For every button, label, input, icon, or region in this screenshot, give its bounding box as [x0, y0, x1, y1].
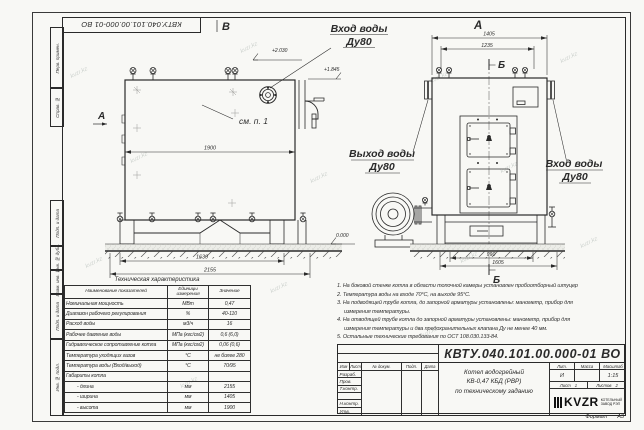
spec-cell-value: 0,6 (6,0) — [209, 330, 251, 340]
view-label-v: В — [222, 21, 230, 33]
spec-header-row: Наименование показателей Единицы измерен… — [65, 286, 251, 299]
elev-1845 — [308, 73, 341, 80]
elev-text-1845: +1.845 — [324, 67, 340, 73]
note-line: 4. На отводящей трубе котла до запорной … — [337, 316, 625, 325]
spec-table-title: Техническая характеристика — [64, 277, 250, 283]
dim-text-1630: 1630 — [196, 255, 208, 261]
spec-cell-name: Расход воды — [65, 319, 168, 329]
spec-cell-unit: % — [168, 309, 209, 319]
see-note-text: см. п. 1 — [239, 116, 268, 126]
rev-col-podp: Подп. — [402, 363, 422, 371]
furnace-doors — [460, 116, 517, 213]
rev-col-data: Дата — [422, 363, 439, 371]
scale-value: 1:15 — [600, 370, 626, 382]
spec-table: Наименование показателей Единицы измерен… — [64, 285, 251, 413]
format-label: ФорматА3 — [500, 414, 628, 420]
spec-row: - длинамм2155 — [65, 382, 251, 392]
support-frame — [120, 220, 306, 244]
lit-value: И — [550, 370, 575, 382]
spec-cell-value: 16 — [209, 319, 251, 329]
product-name-line2: КВ-0,47 КБД (РВР) — [439, 377, 549, 386]
spec-cell-unit: МПа (кгс/см2) — [168, 340, 209, 350]
spec-cell-unit: °С — [168, 350, 209, 360]
dim-text-2155: 2155 — [203, 268, 217, 274]
dim-text-1900: 1900 — [204, 146, 216, 152]
format-word: Формат — [585, 414, 607, 420]
product-name-line1: Котел водогрейный — [439, 368, 549, 377]
spec-cell-value: 0,06 (0,6) — [209, 340, 251, 350]
leader-outlet — [413, 100, 428, 152]
spec-cell-value — [209, 371, 251, 381]
margin-label: Подп. и дата — [55, 302, 60, 331]
elev-2030 — [253, 54, 302, 61]
margin-cell-inv-podl: Инв. № подл. — [50, 338, 64, 416]
sheet-num: 1 — [575, 383, 577, 388]
note-line: измерения температуры. — [337, 308, 625, 317]
spec-cell-value: 70/95 — [209, 361, 251, 371]
spec-header-name: Наименование показателей — [65, 286, 168, 299]
front-view-label-a: А — [473, 20, 482, 32]
spec-cell-unit: МВт — [168, 299, 209, 309]
company-name: КОТЕЛЬНЫЙ ЗАВОД РЭП — [601, 398, 622, 407]
margin-label: Подп. и дата — [55, 209, 60, 238]
spec-row: Номинальная мощностьМВт0,47 — [65, 299, 251, 309]
spec-cell-value: 40-110 — [209, 309, 251, 319]
inlet-flange — [260, 87, 277, 104]
rev-spare-row — [338, 354, 439, 363]
elev-text-2030: +2.030 — [272, 48, 288, 54]
sheets-cell: Листов 2 — [588, 382, 626, 389]
company-logo-cell: KVZR КОТЕЛЬНЫЙ ЗАВОД РЭП — [550, 389, 626, 415]
kvzr-logo-bars-icon — [554, 397, 562, 408]
spec-cell-name: - ширина — [65, 392, 168, 402]
spec-cell-name: - длина — [65, 382, 168, 392]
view-arrow-label-a: А — [97, 111, 105, 122]
ground-hatch-left — [105, 244, 342, 259]
dim-text-990: 990 — [487, 252, 496, 258]
sheets-num: 2 — [615, 383, 617, 388]
spec-row: Температура уходящих газов°Сне более 280 — [65, 350, 251, 360]
label-inlet-top-line2: Ду80 — [345, 36, 372, 48]
note-line: 5. Остальные технические требования по О… — [337, 333, 625, 342]
leader-inlet-top — [270, 48, 331, 88]
drawing-canvas: Вход воды Ду80 Выход воды Ду80 Вход воды… — [62, 17, 624, 283]
spec-cell-name: Рабочее давление воды — [65, 330, 168, 340]
note-line: 1. На боковой стенке котла в области топ… — [337, 282, 625, 291]
label-outlet-line1: Выход воды — [349, 148, 415, 160]
company-name-line2: ЗАВОД РЭП — [601, 402, 622, 406]
spec-cell-unit: МПа (кгс/см2) — [168, 330, 209, 340]
spec-row: - ширинамм1405 — [65, 392, 251, 402]
spec-row: Диапазон рабочего регулирования%40-110 — [65, 309, 251, 319]
label-inlet-top-line1: Вход воды — [331, 23, 388, 35]
product-name-line3: по техническому заданию — [439, 387, 549, 396]
control-box — [513, 87, 538, 107]
spec-row: Рабочее давление водыМПа (кгс/см2)0,6 (6… — [65, 330, 251, 340]
product-name: Котел водогрейный КВ-0,47 КБД (РВР) по т… — [439, 363, 550, 415]
spec-cell-unit: мм — [168, 382, 209, 392]
spec-cell-name: Диапазон рабочего регулирования — [65, 309, 168, 319]
label-outlet-line2: Ду80 — [368, 161, 395, 173]
spec-cell-name: Габариты котла — [65, 371, 168, 381]
rev-col-dokum: № докум. — [362, 363, 402, 371]
spec-row: - высотамм1900 — [65, 402, 251, 412]
title-block: Изм Лист № докум. Подп. Дата Разраб. Про… — [337, 344, 625, 414]
margin-label: Взам. инв. № — [55, 268, 60, 296]
note-line: 3. На подводящей трубе котла, до запорно… — [337, 299, 625, 308]
role-prov: Пров. — [338, 378, 362, 385]
spec-cell-value: 2155 — [209, 382, 251, 392]
spec-cell-name: Номинальная мощность — [65, 299, 168, 309]
spec-table-block: Техническая характеристика Наименование … — [64, 277, 250, 413]
dim-1235 — [441, 46, 534, 69]
role-nkontr: Н.контр. — [338, 400, 362, 407]
margin-label: Справ. № — [55, 97, 60, 118]
door-handle-lower — [468, 184, 493, 190]
col-scale-header: Масштаб — [600, 363, 626, 370]
role-empty — [338, 393, 362, 400]
dim-text-1405: 1405 — [483, 32, 495, 38]
sheets-word: Листов — [596, 383, 611, 388]
role-tkontr: Т.контр. — [338, 386, 362, 393]
side-view — [93, 20, 355, 278]
dim-text-1605: 1605 — [492, 260, 504, 266]
sheet-word: Лист — [560, 383, 571, 388]
fan-unit — [372, 193, 432, 247]
note-line: измерения температуры и два предохраните… — [337, 325, 625, 334]
spec-cell-unit: м3/ч — [168, 319, 209, 329]
label-inlet-right-line2: Ду80 — [561, 171, 588, 183]
spec-cell-name: Гидравлическое сопротивление котла — [65, 340, 168, 350]
spec-cell-value: не более 280 — [209, 350, 251, 360]
right-stub-valve — [548, 207, 556, 227]
dim-text-1235: 1235 — [481, 43, 493, 49]
margin-cell-podp-data-2: Подп. и дата — [50, 293, 64, 340]
inlet-flange-right — [547, 81, 555, 99]
spec-row: Расход водым3/ч16 — [65, 319, 251, 329]
company-logo: KVZR КОТЕЛЬНЫЙ ЗАВОД РЭП — [550, 389, 626, 415]
rev-col-izm: Изм — [338, 363, 350, 371]
spec-cell-unit — [168, 371, 209, 381]
col-mass-header: Масса — [575, 363, 600, 370]
role-razrab: Разраб. — [338, 371, 362, 378]
mass-value — [575, 370, 600, 382]
spec-cell-unit: мм — [168, 402, 209, 412]
view-arrow-a — [93, 122, 107, 125]
spec-header-value: Значение — [209, 286, 251, 299]
rev-dokum-col — [362, 371, 402, 415]
spec-row: Гидравлическое сопротивление котлаМПа (к… — [65, 340, 251, 350]
leader-inlet-right — [553, 100, 567, 163]
titleblock-doc-number: КВТУ.040.101.00.000-01 ВО — [439, 345, 626, 363]
front-base — [437, 215, 545, 246]
section-label-b-top: Б — [498, 60, 505, 71]
col-lit-header: Лит. — [550, 363, 575, 370]
leader-see-note — [202, 105, 233, 119]
kvzr-logo-text: KVZR — [564, 395, 599, 409]
drawing-sheet: kvzr.kz kvzr.kz kvzr.kz kvzr.kz kvzr.kz … — [0, 0, 644, 430]
spec-cell-unit: °С — [168, 361, 209, 371]
front-top-valves — [436, 67, 527, 78]
spec-row: Габариты котла — [65, 371, 251, 381]
spec-cell-value: 0,47 — [209, 299, 251, 309]
outlet-flange-left — [425, 81, 433, 99]
top-valves — [130, 68, 238, 81]
margin-label: Инв. № подл. — [55, 363, 60, 392]
technical-notes: 1. На боковой стенке котла в области топ… — [337, 282, 625, 342]
role-utv: Утв. — [338, 408, 362, 415]
margin-label: Перв. примен. — [55, 43, 60, 74]
rev-podp-col — [402, 371, 422, 415]
note-line: 2. Температура воды на входе 70°С, на вы… — [337, 291, 625, 300]
rev-spare-row — [338, 345, 439, 354]
spec-header-unit: Единицы измерения — [168, 286, 209, 299]
spec-cell-value: 1405 — [209, 392, 251, 402]
elev-text-0000: 0.000 — [336, 233, 349, 239]
spec-cell-name: Температура уходящих газов — [65, 350, 168, 360]
rev-data-col — [422, 371, 439, 415]
spec-cell-value: 1900 — [209, 402, 251, 412]
sheet-cell: Лист 1 — [550, 382, 588, 389]
label-inlet-right-line1: Вход воды — [546, 158, 603, 170]
flue-duct — [299, 80, 324, 129]
spec-cell-unit: мм — [168, 392, 209, 402]
format-value: А3 — [617, 414, 624, 420]
spec-cell-name: Температура воды (Вход/выход) — [65, 361, 168, 371]
spec-cell-name: - высота — [65, 402, 168, 412]
spec-row: Температура воды (Вход/выход)°С70/95 — [65, 361, 251, 371]
rev-col-list: Лист — [350, 363, 362, 371]
door-handle-upper — [468, 135, 493, 141]
